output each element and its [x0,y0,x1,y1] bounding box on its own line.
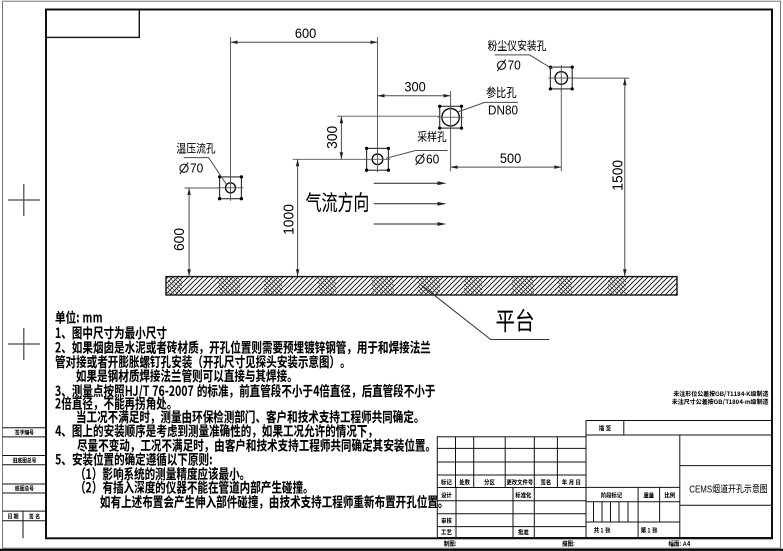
svg-text:描 签: 描 签 [599,423,611,433]
svg-text:如有上述布置会产生伸入部件碰撞，由技术支持工程师重新布置开孔: 如有上述布置会产生伸入部件碰撞，由技术支持工程师重新布置开孔位置。 [100,491,448,511]
svg-text:描图:: 描图: [562,538,575,548]
svg-text:粉尘仪安装孔: 粉尘仪安装孔 [487,37,546,54]
svg-text:1500: 1500 [610,160,626,191]
svg-text:600: 600 [295,26,316,41]
svg-text:气流方向: 气流方向 [305,185,369,217]
svg-text:参比孔: 参比孔 [486,84,517,101]
svg-text:签字编号: 签字编号 [15,428,34,437]
svg-text:DN80: DN80 [488,103,518,118]
svg-text:60: 60 [426,152,439,167]
svg-text:600: 600 [172,228,188,251]
svg-text:共 1 张: 共 1 张 [593,525,612,535]
svg-text:采样孔: 采样孔 [417,128,447,145]
svg-text:年 月 日: 年 月 日 [562,477,581,487]
svg-text:平台: 平台 [496,302,535,338]
svg-text:更改文件号: 更改文件号 [506,477,533,487]
svg-text:500: 500 [500,151,521,166]
svg-text:旧底图总号: 旧底图总号 [13,456,37,465]
svg-text:温压流孔: 温压流孔 [176,139,215,156]
svg-text:标准化: 标准化 [515,490,531,500]
svg-text:幅面: A4: 幅面: A4 [668,538,690,548]
svg-text:70: 70 [190,161,203,176]
svg-text:批准: 批准 [518,527,529,537]
svg-text:重量: 重量 [643,490,654,500]
svg-text:日 期: 日 期 [8,512,19,521]
svg-text:阶段标记: 阶段标记 [601,490,623,500]
svg-text:1000: 1000 [281,204,297,235]
svg-text:300: 300 [404,79,425,94]
svg-text:300: 300 [325,126,341,149]
svg-text:70: 70 [508,58,521,73]
svg-text:CEMS烟道开孔示意图: CEMS烟道开孔示意图 [689,480,767,496]
svg-text:制图:: 制图: [444,538,457,548]
svg-text:分区: 分区 [484,477,495,487]
svg-text:签名: 签名 [540,477,552,487]
svg-text:工艺: 工艺 [440,527,452,537]
svg-text:未注尺寸公差按GB/T1804-m级制造: 未注尺寸公差按GB/T1804-m级制造 [672,397,769,406]
svg-text:处数: 处数 [458,477,471,487]
svg-text:审核: 审核 [441,515,452,525]
svg-text:底图总号: 底图总号 [15,484,34,493]
svg-text:第 1 张: 第 1 张 [641,525,659,535]
svg-text:签 名: 签 名 [29,512,40,521]
svg-text:比例: 比例 [664,490,675,500]
svg-text:标记: 标记 [441,477,452,487]
